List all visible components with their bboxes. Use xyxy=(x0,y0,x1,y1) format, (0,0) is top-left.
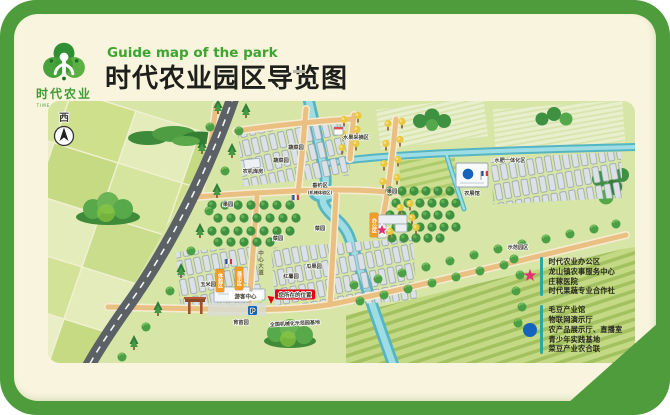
you-are-here-label: 您所在的位置 xyxy=(278,291,312,299)
logo-mark xyxy=(41,40,87,84)
parking-sign: P xyxy=(248,306,257,315)
legend-circle-group: 毛豆产业馆 物联网演示厅 农产品展示厅、直播室 青少年实践基地 菜豆产业农合联 xyxy=(520,305,650,354)
greenhouse-sign-a: 体验区 xyxy=(216,269,224,292)
label-veg-garden-3: 菜园 xyxy=(272,234,283,242)
star-icon: ★ xyxy=(522,268,537,285)
legend-circle-item: 毛豆产业馆 xyxy=(549,305,623,315)
expo-circle-marker xyxy=(462,168,474,180)
svg-text:游客中心: 游客中心 xyxy=(234,293,257,301)
label-machine-shed: 农机库房 xyxy=(242,167,264,175)
legend-star-item: 庄稼医院 xyxy=(549,277,616,287)
vertical-road-name: 中心大道 xyxy=(256,250,264,292)
legend-circle-item: 物联网演示厅 xyxy=(549,315,623,325)
label-fertigation-zone: 水肥一体化区 xyxy=(494,156,526,164)
office-vertical-sign: 办公区 xyxy=(370,213,378,237)
legend-star-item: 龙山镇农事服务中心 xyxy=(549,267,616,277)
label-fruit-picking: 水果采摘区 xyxy=(343,133,370,141)
logo: 时代农业 TIME AGRICULTURE xyxy=(28,40,100,108)
greenhouse-sign-b: 展示区 xyxy=(235,267,243,290)
machine-shed-building xyxy=(244,158,261,169)
map-legend: ★ 时代农业办公区 龙山镇农事服务中心 庄稼医院 时代果蔬专业合作社 毛豆产业馆… xyxy=(520,257,650,354)
compass-west-label: 西 xyxy=(59,112,69,124)
expo-hall-building xyxy=(456,163,488,187)
label-demo-zone: 示范园区 xyxy=(508,243,530,251)
parking-letter: P xyxy=(250,307,255,315)
label-vegetable-garden-1: 蔬菜园 xyxy=(288,143,304,151)
green-frame: 时代农业 TIME AGRICULTURE Guide map of the p… xyxy=(0,0,670,415)
legend-circle-item: 农产品展示厅、直播室 xyxy=(549,325,623,335)
label-orchard-left: 果园 xyxy=(222,200,233,208)
label-nursery: 育苗园 xyxy=(233,318,249,326)
label-fishing-area: 垂钓区 xyxy=(312,181,328,189)
legend-circle-item: 青少年实践基地 xyxy=(549,335,623,345)
label-orchard-right: 果园 xyxy=(386,187,397,195)
circle-icon xyxy=(523,323,537,337)
visitor-center-label: 游客中心 xyxy=(229,292,262,301)
label-corn-garden: 玉米园 xyxy=(200,280,216,288)
label-expo-hall: 农展馆 xyxy=(463,189,480,197)
label-vegetable-garden-2: 蔬菜园 xyxy=(273,156,289,164)
page-title: 时代农业园区导览图 xyxy=(105,58,348,95)
legend-circle-item: 菜豆产业农合联 xyxy=(549,344,623,354)
label-sweet-potato: 红薯园 xyxy=(283,272,299,280)
legend-star-group: ★ 时代农业办公区 龙山镇农事服务中心 庄稼医院 时代果蔬专业合作社 xyxy=(520,257,650,296)
legend-star-item: 时代果蔬专业合作社 xyxy=(549,286,616,296)
title-dash xyxy=(293,70,305,73)
control-hut xyxy=(334,127,343,135)
label-veg-garden-4: 菜园 xyxy=(314,224,325,232)
legend-star-item: 时代农业办公区 xyxy=(549,257,616,267)
logo-brand-cn: 时代农业 xyxy=(28,85,100,102)
label-fishing-sub: (机械体验区) xyxy=(308,189,333,196)
label-melon-garden: 瓜果园 xyxy=(306,262,322,270)
